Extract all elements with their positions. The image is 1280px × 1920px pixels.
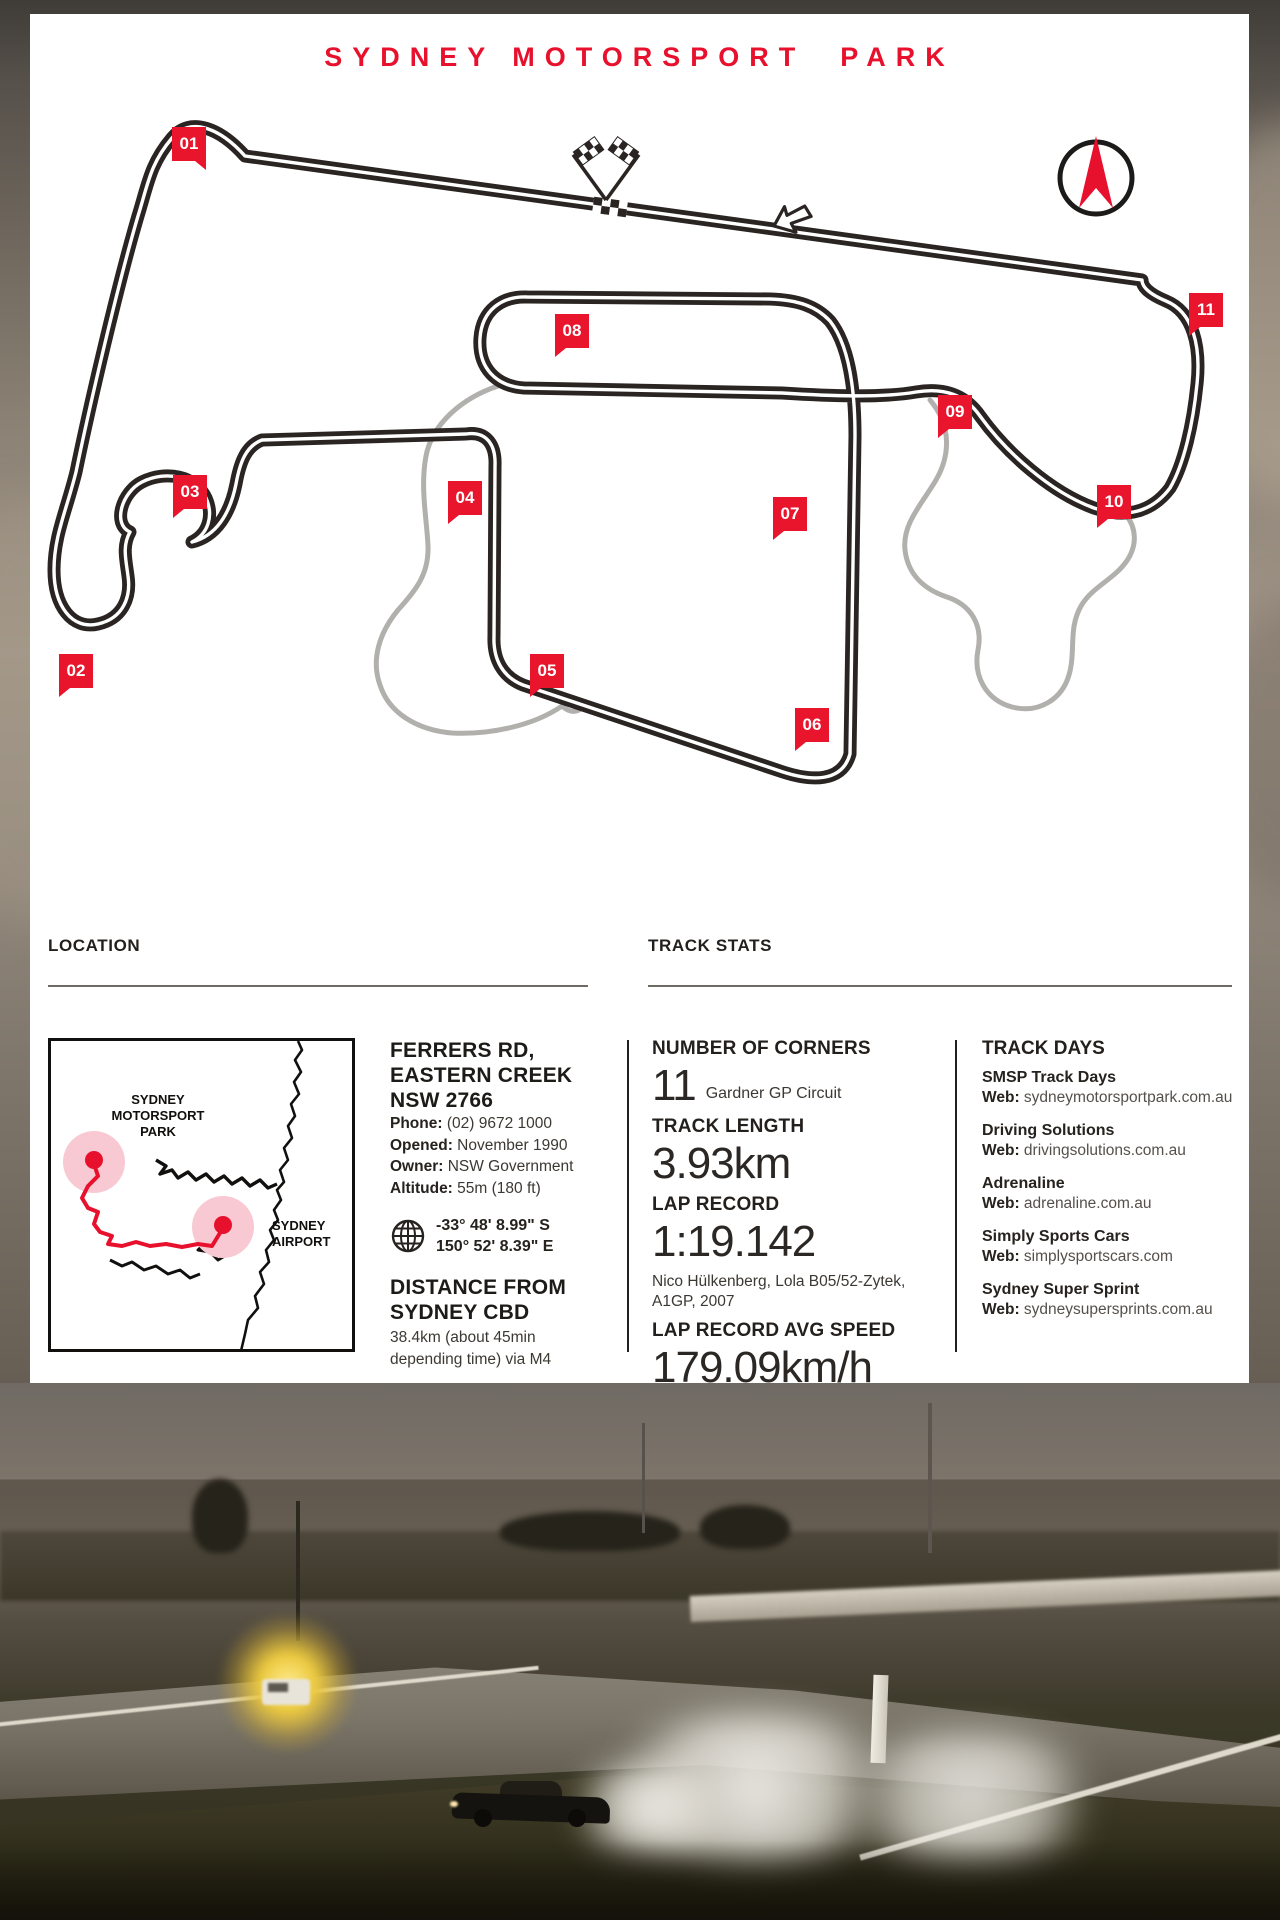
- corner-marker-11: 11: [1189, 293, 1223, 327]
- checkered-flags-icon: [570, 137, 641, 201]
- track-stats-rule: [648, 985, 1232, 987]
- provider: Sydney Super Sprint Web: sydneysuperspri…: [982, 1280, 1237, 1320]
- record-value: 1:19.142: [652, 1218, 937, 1266]
- location-rule: [48, 985, 588, 987]
- distance-heading: DISTANCE FROM: [390, 1275, 622, 1300]
- harbour-river: [156, 1160, 277, 1188]
- altitude-line: Altitude: 55m (180 ft): [390, 1178, 622, 1200]
- record-holder: Nico Hülkenberg, Lola B05/52-Zytek, A1GP…: [652, 1272, 937, 1312]
- photo-tree: [192, 1479, 248, 1553]
- gp-circuit-outline: [54, 127, 1198, 778]
- corners-note: Gardner GP Circuit: [706, 1085, 842, 1103]
- provider: SMSP Track Days Web: sydneymotorsportpar…: [982, 1068, 1237, 1108]
- track-days-column: TRACK DAYS SMSP Track Days Web: sydneymo…: [982, 1038, 1237, 1333]
- corner-marker-02: 02: [59, 654, 93, 688]
- corner-marker-06: 06: [795, 708, 829, 742]
- headlight-glint: [450, 1801, 458, 1807]
- owner-line: Owner: NSW Government: [390, 1156, 622, 1178]
- distance-value: 38.4km (about 45min depending time) via …: [390, 1327, 622, 1370]
- page-title: SYDNEY MOTORSPORT PARK: [30, 42, 1249, 73]
- photo-tower: [928, 1403, 932, 1553]
- corner-marker-01: 01: [172, 127, 206, 161]
- length-value: 3.93km: [652, 1140, 937, 1188]
- provider: Driving Solutions Web: drivingsolutions.…: [982, 1121, 1237, 1161]
- photo-tree: [700, 1505, 790, 1549]
- globe-icon: [390, 1218, 426, 1254]
- photo-light-pole: [642, 1423, 645, 1533]
- map-track-label: SYDNEY: [131, 1092, 185, 1107]
- avg-speed-label: LAP RECORD AVG SPEED: [652, 1320, 937, 1342]
- start-finish-line: [592, 197, 628, 218]
- corner-marker-09: 09: [938, 395, 972, 429]
- airport-location-dot: [214, 1216, 232, 1234]
- map-track-label: PARK: [140, 1124, 176, 1139]
- length-label: TRACK LENGTH: [652, 1116, 937, 1138]
- phone-line: Phone: (02) 9672 1000: [390, 1113, 622, 1135]
- distance-heading: SYDNEY CBD: [390, 1300, 622, 1325]
- corner-marker-03: 03: [173, 475, 207, 509]
- location-heading: LOCATION: [48, 936, 140, 956]
- photo-service-vehicle: [262, 1679, 310, 1705]
- stats-column: NUMBER OF CORNERS 11 Gardner GP Circuit …: [652, 1038, 937, 1398]
- photo-tree: [500, 1511, 680, 1551]
- address-line: NSW 2766: [390, 1088, 622, 1113]
- corner-marker-04: 04: [448, 481, 482, 515]
- record-label: LAP RECORD: [652, 1194, 937, 1216]
- corner-marker-10: 10: [1097, 485, 1131, 519]
- track-days-heading: TRACK DAYS: [982, 1038, 1237, 1060]
- drift-photo: [0, 1383, 1280, 1920]
- corner-marker-05: 05: [530, 654, 564, 688]
- track-location-dot: [85, 1151, 103, 1169]
- coordinates-row: -33° 48' 8.99" S 150° 52' 8.39" E: [390, 1215, 622, 1257]
- corner-marker-07: 07: [773, 497, 807, 531]
- drift-car-silhouette: [452, 1781, 610, 1827]
- photo-vignette: [0, 1840, 1280, 1920]
- poster-page: SYDNEY MOTORSPORT PARK: [0, 0, 1280, 1920]
- provider: Simply Sports Cars Web: simplysportscars…: [982, 1227, 1237, 1267]
- column-divider: [627, 1040, 629, 1352]
- coordinates-text: -33° 48' 8.99" S 150° 52' 8.39" E: [436, 1215, 553, 1257]
- provider: Adrenaline Web: adrenaline.com.au: [982, 1174, 1237, 1214]
- column-divider: [955, 1040, 957, 1352]
- address-line: EASTERN CREEK: [390, 1063, 622, 1088]
- coastline: [241, 1041, 302, 1351]
- poster-card: SYDNEY MOTORSPORT PARK: [30, 14, 1249, 1383]
- address-line: FERRERS RD,: [390, 1038, 622, 1063]
- southern-river: [110, 1260, 200, 1278]
- opened-line: Opened: November 1990: [390, 1135, 622, 1157]
- location-map: SYDNEY MOTORSPORT PARK SYDNEY AIRPORT: [48, 1038, 355, 1352]
- track-stats-heading: TRACK STATS: [648, 936, 772, 956]
- alt-circuit-extension: [905, 400, 1135, 709]
- map-airport-label: AIRPORT: [272, 1234, 331, 1249]
- gp-circuit-centerline: [54, 127, 1198, 778]
- address-column: FERRERS RD, EASTERN CREEK NSW 2766 Phone…: [390, 1038, 622, 1370]
- corners-row: 11 Gardner GP Circuit: [652, 1062, 937, 1110]
- map-track-label: MOTORSPORT: [112, 1108, 205, 1123]
- corner-marker-08: 08: [555, 314, 589, 348]
- corners-value: 11: [652, 1062, 696, 1110]
- compass-north-icon: [1060, 136, 1132, 214]
- corners-label: NUMBER OF CORNERS: [652, 1038, 937, 1060]
- track-map: [30, 84, 1249, 874]
- map-airport-label: SYDNEY: [272, 1218, 326, 1233]
